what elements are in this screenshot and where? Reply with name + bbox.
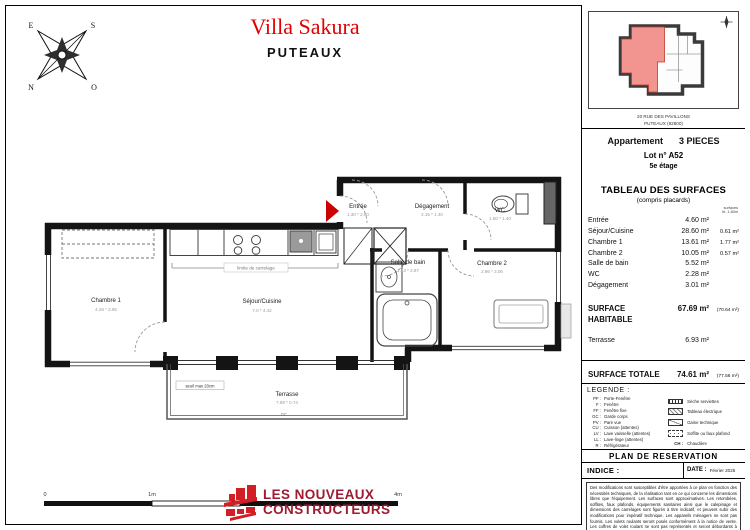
surface-rows: Entrée 4.60 m² Séjour/Cuisine 28.60 m² 0… — [588, 216, 739, 292]
room-label-degagement: Dégagement — [415, 204, 450, 210]
floor-number: 5e étage — [588, 163, 739, 170]
table-row: Salle de bain 5.52 m² — [588, 259, 739, 270]
bedroom1-wardrobe — [62, 230, 154, 258]
room-label-entree: Entrée — [349, 204, 367, 210]
surface-table-section: Appartement 3 PIECES Lot n° A52 5e étage… — [582, 129, 745, 384]
scale-4m: 4m — [394, 492, 402, 498]
table-row: Chambre 1 13.61 m² 1.77 m² — [588, 238, 739, 249]
room-label-sdb: Salle de bain — [391, 260, 426, 266]
total-surface-box: SURFACE TOTALE 74.61 m² (77.56 m²) — [582, 360, 745, 383]
bathroom-fixtures — [376, 262, 437, 346]
compass-s-label: S — [91, 21, 95, 30]
key-plan-thumbnail — [588, 11, 739, 109]
table-row: Dégagement 3.01 m² — [588, 281, 739, 292]
mini-compass-icon — [721, 16, 733, 28]
lot-number: Lot n° A52 — [588, 151, 739, 160]
disclaimer-text: Des modifications sont susceptibles d'êt… — [586, 482, 741, 530]
compass-n-label: N — [28, 83, 34, 92]
entrance-arrow-icon — [326, 200, 339, 222]
address-line1: 20 RUE DES PAVILLONS — [588, 113, 739, 120]
room-dims-chambre2: 2.96 * 3.06 — [481, 269, 503, 274]
terrace-notes: seuil max 20cm GC — [176, 381, 287, 417]
list-item: Gaine technique — [668, 417, 740, 428]
title-block-sidebar: 20 RUE DES PAVILLONS PUTEAUX (92800) App… — [581, 5, 745, 525]
room-label-wc: WC — [495, 208, 506, 214]
room-label-chambre1: Chambre 1 — [91, 298, 121, 304]
legend-title: LEGENDE : — [587, 387, 740, 394]
key-plan-section: 20 RUE DES PAVILLONS PUTEAUX (92800) — [582, 5, 745, 129]
floor-plan-sheet: Villa Sakura PUTEAUX N E S O — [0, 0, 750, 530]
table-row: Séjour/Cuisine 28.60 m² 0.61 m² — [588, 227, 739, 238]
room-label-sejour: Séjour/Cuisine — [242, 299, 282, 305]
indice-date-row: INDICE : DATE : Février 2025 — [582, 463, 745, 479]
surface-table-title: TABLEAU DES SURFACES — [588, 185, 739, 196]
towel-radiator-icon — [668, 399, 683, 404]
room-dims-chambre1: 4.28 * 2.95 — [95, 307, 117, 312]
apartment-label: Appartement — [607, 136, 663, 146]
soffit-icon — [668, 430, 683, 437]
entry-closet-duct — [344, 228, 406, 264]
scale-0: 0 — [43, 492, 46, 498]
kitchen-fixtures — [170, 230, 338, 256]
room-dims-sdb: 2.13 * 2.87 — [397, 268, 419, 273]
date-value: Février 2025 — [710, 468, 736, 473]
list-item: Tableau électrique — [668, 407, 740, 418]
apartment-type: 3 PIECES — [679, 136, 720, 146]
room-dims-terrasse: 7.58 * 0.74 — [276, 400, 298, 405]
habitable-surface-row: SURFACE HABITABLE 67.69 m² (70.64 m²) — [588, 304, 739, 326]
surface-col-note: surfaces ht. 1.80m — [588, 206, 738, 215]
compass-rose-icon: N E S O — [28, 21, 97, 92]
room-dims-degagement: 2.15 * 1.40 — [421, 212, 443, 217]
builder-logo-line1: LES NOUVEAUX — [263, 487, 390, 502]
technical-duct-icon — [668, 419, 683, 426]
scale-1m: 1m — [148, 492, 156, 498]
compass-o-label: O — [91, 83, 97, 92]
guardrail-abbr: GC — [281, 412, 287, 417]
indice-label: INDICE : — [582, 466, 683, 475]
room-label-chambre2: Chambre 2 — [477, 261, 507, 267]
legend-symbols: Sèche serviettes Tableau électrique Gain… — [668, 396, 740, 449]
tiling-limit-label: limite de carrelage — [237, 266, 275, 271]
room-dims-wc: 1.60 * 1.40 — [489, 216, 511, 221]
surface-table-subtitle: (compris placards) — [588, 197, 739, 204]
room-dims-entree: 1.30 * 2.50 — [347, 212, 369, 217]
list-item: CH :Chaudière — [668, 438, 740, 449]
apartment-row: Appartement 3 PIECES — [588, 136, 739, 146]
date-label: DATE : — [687, 467, 707, 473]
table-row: Chambre 2 10.05 m² 0.57 m² — [588, 249, 739, 260]
key-plan-drawing — [589, 12, 738, 108]
legend-abbreviations: PF :Porte-Fenêtre F :Fenêtre FF :Fenêtre… — [587, 396, 668, 449]
address-line2: PUTEAUX (92800) — [588, 120, 739, 127]
builder-logo: LES NOUVEAUX CONSTRUCTEURS — [263, 487, 390, 517]
builder-logo-line2: CONSTRUCTEURS — [263, 502, 390, 517]
total-surface-row: SURFACE TOTALE 74.61 m² (77.56 m²) — [588, 370, 739, 383]
date-cell: DATE : Février 2025 — [683, 463, 745, 478]
compass-e-label: E — [29, 21, 34, 30]
legend-section: LEGENDE : PF :Porte-Fenêtre F :Fenêtre F… — [582, 384, 745, 450]
room-dims-sejour: 7.0 * 4.42 — [252, 308, 272, 313]
table-row: Entrée 4.60 m² — [588, 216, 739, 227]
room-label-terrasse: Terrasse — [275, 392, 299, 398]
list-item: Soffite ou faux plafond — [668, 428, 740, 439]
reservation-section: PLAN DE RESERVATION INDICE : DATE : Févr… — [582, 450, 745, 530]
table-row: WC 2.28 m² — [588, 270, 739, 281]
list-item: R :Réfrigérateur — [587, 443, 668, 449]
terrace-surface-row: Terrasse 6.93 m² — [588, 336, 739, 347]
reservation-title: PLAN DE RESERVATION — [582, 450, 745, 463]
list-item: Sèche serviettes — [668, 396, 740, 407]
electrical-panel-icon — [668, 408, 683, 415]
tiling-limit-note: limite de carrelage — [172, 263, 338, 272]
threshold-note: seuil max 20cm — [185, 384, 215, 389]
